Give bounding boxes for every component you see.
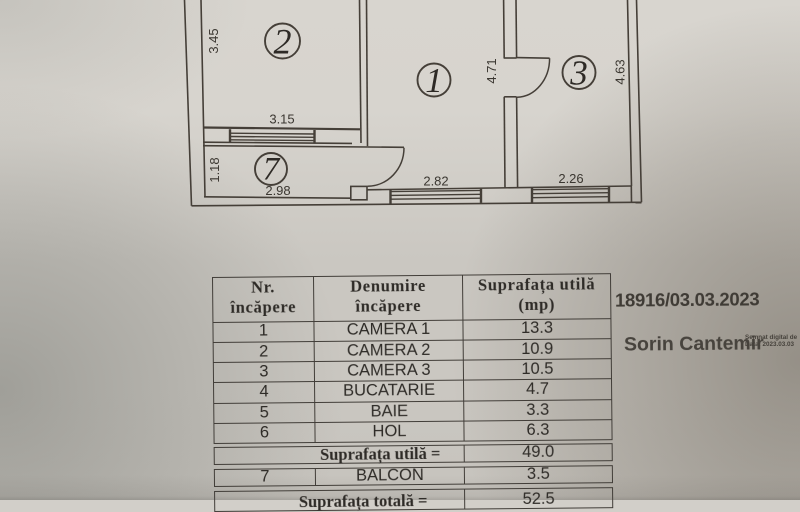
svg-text:2.98: 2.98 [265, 183, 290, 198]
svg-text:2: 2 [274, 22, 292, 62]
svg-text:3: 3 [569, 54, 588, 93]
svg-text:2.82: 2.82 [423, 174, 448, 189]
svg-text:1: 1 [425, 61, 443, 100]
svg-text:1.18: 1.18 [207, 157, 222, 182]
svg-text:2.26: 2.26 [558, 171, 583, 186]
svg-text:3.15: 3.15 [269, 112, 294, 127]
svg-text:4.63: 4.63 [613, 59, 628, 84]
svg-text:4.71: 4.71 [484, 58, 499, 83]
svg-text:3.45: 3.45 [206, 28, 221, 53]
